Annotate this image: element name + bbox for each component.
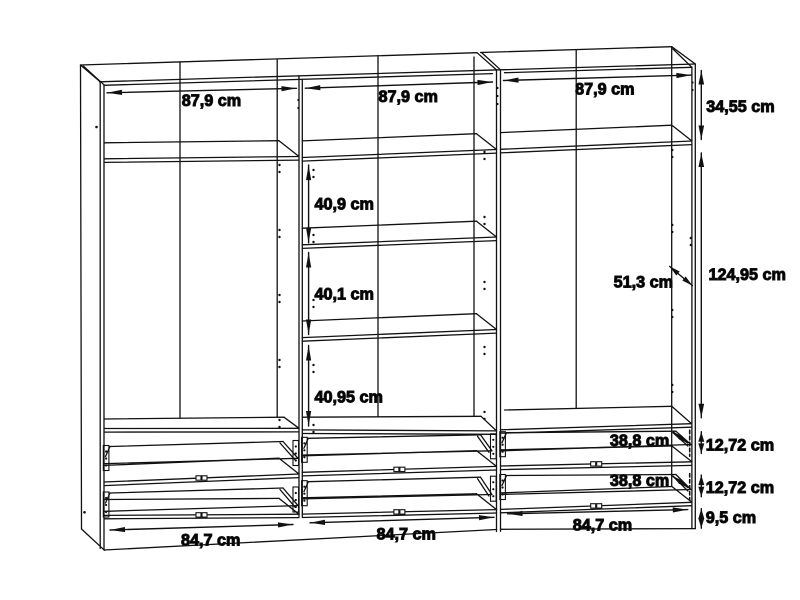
svg-text:87,9 cm: 87,9 cm xyxy=(182,92,241,110)
svg-text:124,95 cm: 124,95 cm xyxy=(709,266,786,284)
svg-text:51,3 cm: 51,3 cm xyxy=(614,273,673,291)
svg-text:84,7 cm: 84,7 cm xyxy=(573,516,632,534)
svg-text:84,7 cm: 84,7 cm xyxy=(376,526,435,544)
svg-text:12,72 cm: 12,72 cm xyxy=(706,437,774,455)
svg-text:84,7 cm: 84,7 cm xyxy=(181,531,240,549)
svg-text:34,55 cm: 34,55 cm xyxy=(706,98,774,116)
svg-text:38,8 cm: 38,8 cm xyxy=(610,472,669,490)
svg-text:40,1 cm: 40,1 cm xyxy=(315,285,374,303)
svg-text:12,72 cm: 12,72 cm xyxy=(706,479,774,497)
svg-text:40,95 cm: 40,95 cm xyxy=(315,388,383,406)
svg-text:38,8 cm: 38,8 cm xyxy=(610,432,669,450)
svg-text:87,9 cm: 87,9 cm xyxy=(378,88,437,106)
svg-text:87,9 cm: 87,9 cm xyxy=(575,81,634,99)
svg-text:9,5 cm: 9,5 cm xyxy=(706,509,756,527)
svg-text:40,9 cm: 40,9 cm xyxy=(315,195,374,213)
